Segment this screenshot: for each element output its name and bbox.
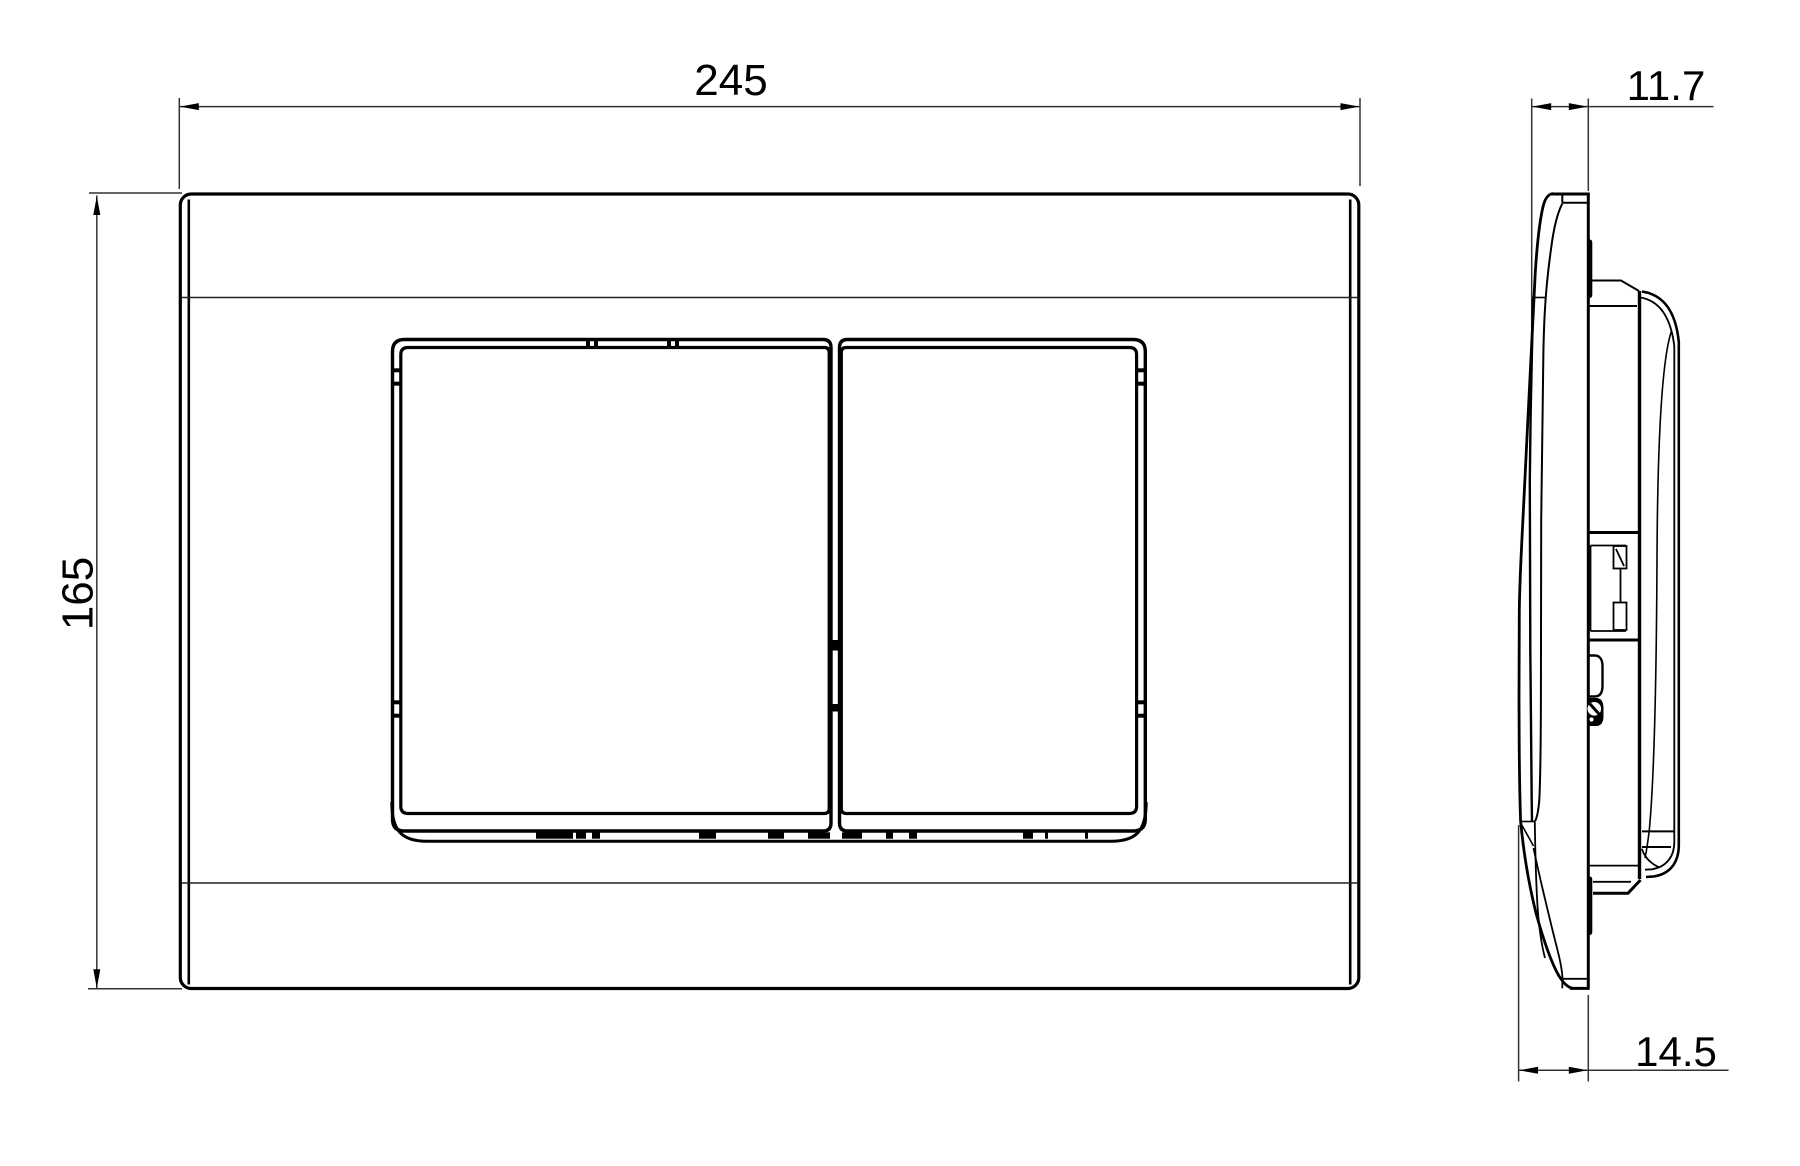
svg-text:14.5: 14.5 bbox=[1635, 1028, 1717, 1075]
svg-text:11.7: 11.7 bbox=[1627, 62, 1706, 109]
svg-text:165: 165 bbox=[54, 557, 103, 630]
svg-text:245: 245 bbox=[694, 56, 767, 105]
